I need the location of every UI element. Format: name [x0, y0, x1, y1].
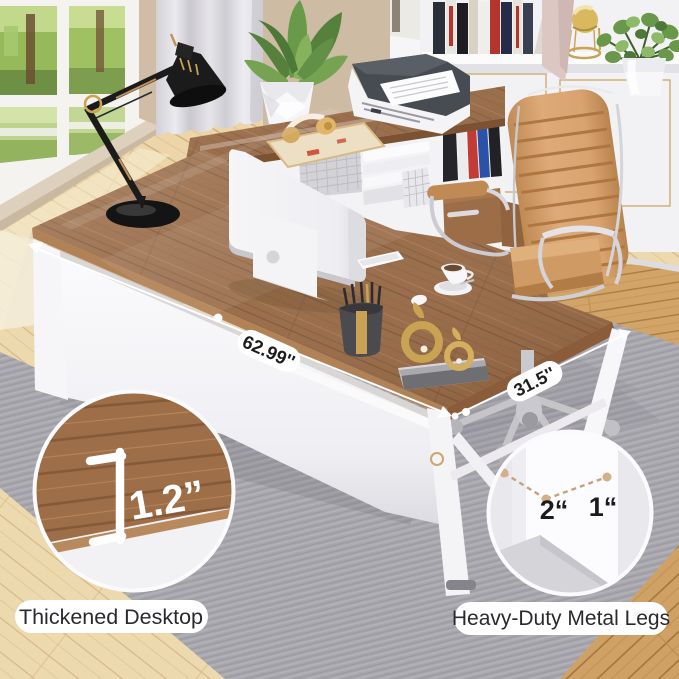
svg-text:Heavy-Duty Metal Legs: Heavy-Duty Metal Legs [452, 607, 670, 630]
svg-text:Thickened Desktop: Thickened Desktop [19, 605, 203, 629]
svg-text:1“: 1“ [589, 492, 618, 522]
svg-text:2“: 2“ [540, 495, 569, 525]
